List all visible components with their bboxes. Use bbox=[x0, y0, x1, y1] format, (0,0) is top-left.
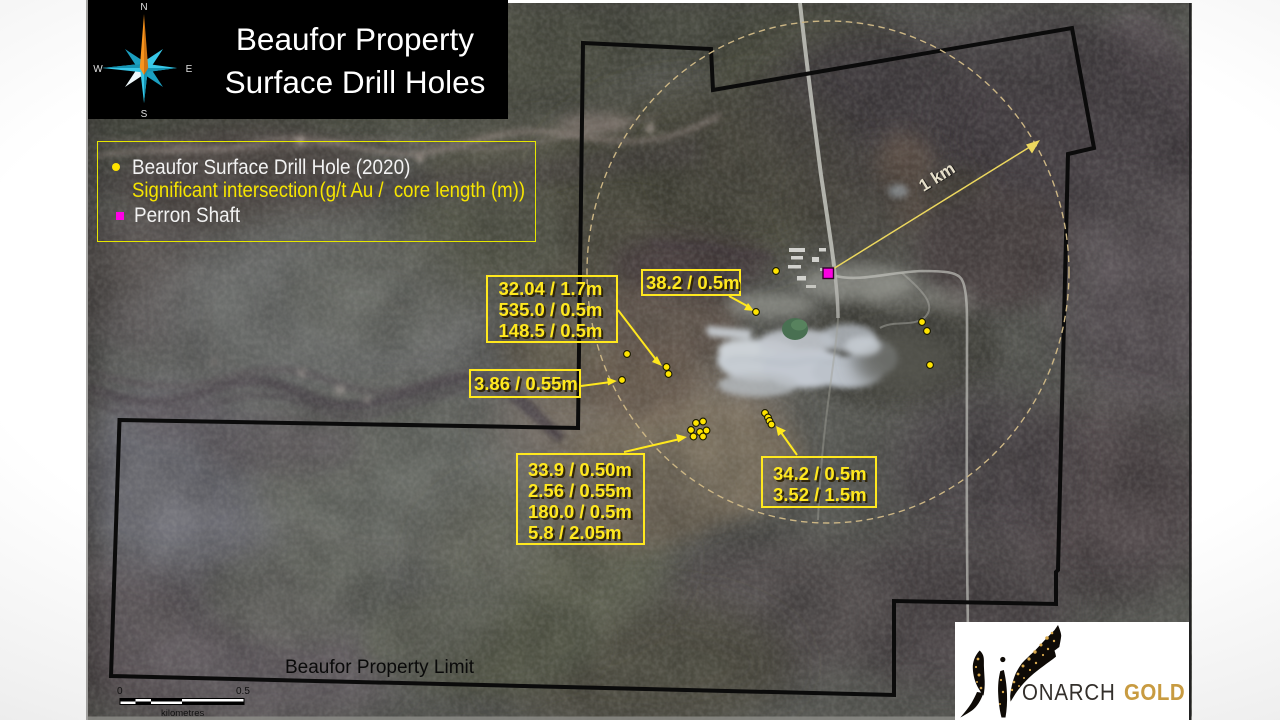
svg-text:W: W bbox=[93, 64, 103, 75]
svg-text:0.5: 0.5 bbox=[236, 686, 250, 697]
svg-text:S: S bbox=[141, 109, 148, 119]
svg-text:E: E bbox=[186, 64, 193, 75]
svg-text:kilometres: kilometres bbox=[161, 708, 205, 719]
svg-text:0: 0 bbox=[117, 686, 123, 697]
svg-text:GOLD: GOLD bbox=[1124, 678, 1185, 704]
svg-text:ONARCH: ONARCH bbox=[1022, 678, 1116, 704]
svg-text:N: N bbox=[140, 2, 147, 13]
